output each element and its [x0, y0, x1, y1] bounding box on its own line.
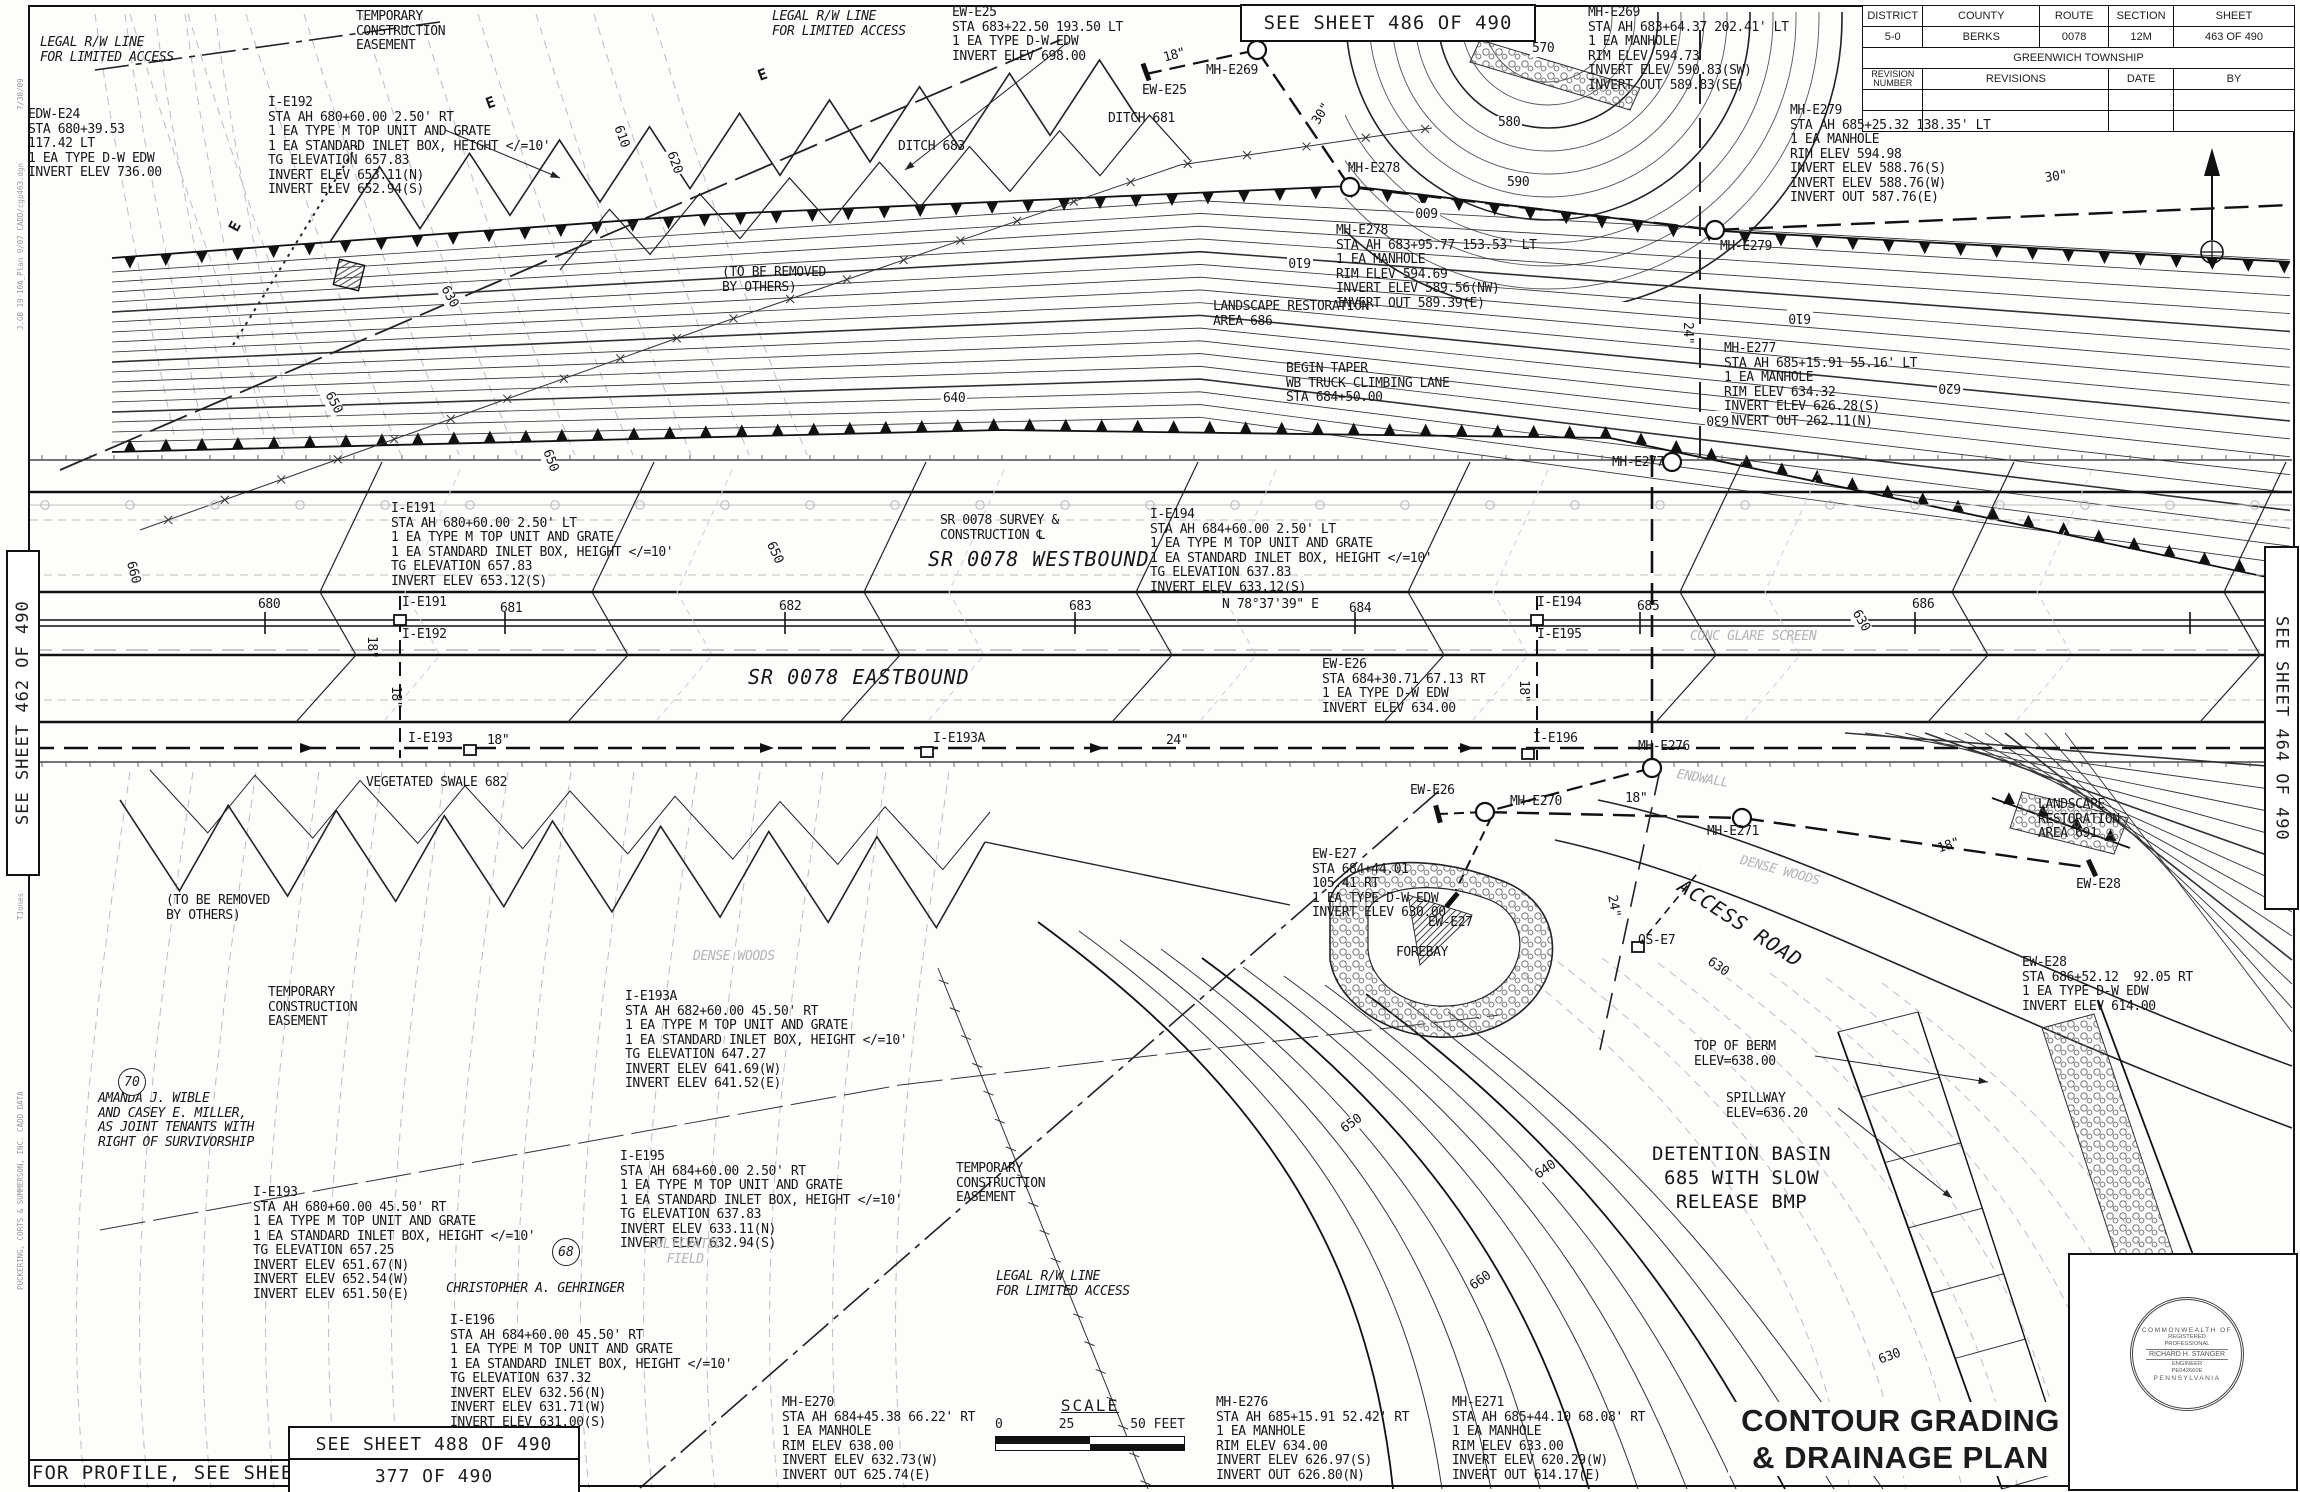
annotation-684: 684 [1349, 602, 1371, 617]
sheet-ref-profile: 377 OF 490 [288, 1458, 580, 1492]
annotation-j-gb-19-10a-plan-9-07-cadd-cg: J.GB 19-10A_Plan 9/07 CADD/cgp463.dgn [14, 163, 29, 330]
annotation-to-be-removed: (TO BE REMOVED BY OTHERS) [722, 266, 826, 295]
annotation-top-of-berm: TOP OF BERM ELEV=638.00 [1694, 1040, 1776, 1069]
annotation-24: 24" [1166, 734, 1188, 749]
annotation-detention-basin: DETENTION BASIN 685 WITH SLOW RELEASE BM… [1652, 1142, 1831, 1214]
seal-engineer-name: RICHARD H. STANGER [2146, 1349, 2228, 1360]
annotation-610: 610 [1787, 310, 1813, 325]
parcel-number-70: 70 [118, 1068, 146, 1096]
annotation-cultivated: CULTIVATED FIELD [648, 1238, 722, 1267]
revision-number-header: REVISION NUMBER [1863, 69, 1923, 90]
annotation-685: 685 [1637, 600, 1659, 615]
scale-block: SCALE 0 25 50 FEET [995, 1396, 1185, 1451]
annotation-ew-e28: EW-E28 STA 686+52.12 92.05 RT 1 EA TYPE … [2022, 956, 2193, 1014]
annotation-legal-r-w-line: LEGAL R/W LINE FOR LIMITED ACCESS [996, 1270, 1130, 1299]
annotation-24: 24" [1604, 894, 1622, 918]
annotation-temporary: TEMPORARY CONSTRUCTION EASEMENT [268, 986, 357, 1030]
annotation-600: 600 [1414, 204, 1440, 219]
annotation-580: 580 [1496, 116, 1522, 131]
annotation-temporary: TEMPORARY CONSTRUCTION EASEMENT [956, 1162, 1045, 1206]
stamp-box: COMMONWEALTH OF REGISTERED PROFESSIONAL … [2068, 1253, 2298, 1491]
annotation-30: 30" [2044, 169, 2068, 186]
route-value: 0078 [2040, 27, 2109, 48]
annotation-i-e192: I-E192 STA AH 680+60.00 2.50' RT 1 EA TY… [268, 96, 550, 198]
annotation-i-e191: I-E191 [402, 596, 447, 611]
drawing-title-line2: & DRAINAGE PLAN [1728, 1439, 2073, 1476]
annotation-24: 24" [1680, 322, 1695, 344]
title-block-header: SECTION [2109, 6, 2174, 27]
sheet-number-value: 463 OF 490 [2174, 27, 2295, 48]
annotation-forebay: FOREBAY [1396, 946, 1448, 961]
annotation-sr-0078-survey: SR 0078 SURVEY & CONSTRUCTION ℄ [940, 514, 1059, 543]
annotation-mh-e276: MH-E276 STA AH 685+15.91 52.42' RT 1 EA … [1216, 1396, 1409, 1483]
annotation-os-e7: OS-E7 [1638, 934, 1675, 949]
district-value: 5-0 [1863, 27, 1923, 48]
scale-tick-0: 0 [995, 1417, 1003, 1432]
annotation-landscape: LANDSCAPE RESTORATION AREA 691 [2038, 798, 2120, 842]
annotation-680: 680 [258, 598, 280, 613]
sheet-ref-left: SEE SHEET 462 OF 490 [6, 550, 40, 876]
annotation-i-e191: I-E191 STA AH 680+60.00 2.50' LT 1 EA TY… [391, 502, 673, 589]
annotation-dense-woods: DENSE WOODS [693, 950, 775, 965]
annotation-landscape-restoration: LANDSCAPE RESTORATION AREA 686 [1213, 300, 1369, 329]
annotation-7-30-09: 7/30/09 [14, 78, 29, 110]
date-header: DATE [2109, 69, 2174, 90]
annotation-sr-0078-eastbound: SR 0078 EASTBOUND [748, 670, 970, 685]
annotation-18: 18" [388, 686, 403, 708]
annotation-mh-e270: MH-E270 [1510, 795, 1562, 810]
annotation-ditch-681: DITCH 681 [1108, 112, 1175, 127]
annotation-ew-e25: EW-E25 STA 683+22.50 193.50 LT 1 EA TYPE… [952, 6, 1123, 64]
annotation-i-e192: I-E192 [402, 628, 447, 643]
annotation-i-e196: I-E196 STA AH 684+60.00 45.50' RT 1 EA T… [450, 1314, 732, 1430]
annotation-begin-taper: BEGIN TAPER WB TRUCK CLIMBING LANE STA 6… [1286, 362, 1449, 406]
annotation-18: 18" [364, 636, 379, 658]
annotation-mh-e271: MH-E271 [1707, 825, 1759, 840]
sheet-ref-top: SEE SHEET 486 OF 490 [1240, 4, 1536, 42]
annotation-686: 686 [1912, 598, 1934, 613]
annotation-to-be-removed: (TO BE REMOVED BY OTHERS) [166, 894, 270, 923]
section-value: 12M [2109, 27, 2174, 48]
annotation-610: 610 [1287, 254, 1313, 269]
drawing-sheet: SEE SHEET 486 OF 490 SEE SHEET 462 OF 49… [0, 0, 2300, 1492]
title-block-header: ROUTE [2040, 6, 2109, 27]
township-label: GREENWICH TOWNSHIP [1863, 48, 2295, 69]
annotation-i-e194: I-E194 [1537, 596, 1582, 611]
annotation-ew-e28: EW-E28 [2076, 878, 2121, 893]
scale-bar [995, 1436, 1185, 1451]
annotation-590: 590 [1505, 176, 1531, 191]
annotation-christopher-a-gehringer: CHRISTOPHER A. GEHRINGER [446, 1282, 624, 1297]
sheet-ref-right: SEE SHEET 464 OF 490 [2264, 546, 2299, 910]
scale-tick-25: 25 [1059, 1417, 1075, 1432]
annotation-ew-e26: EW-E26 STA 684+30.71 67.13 RT 1 EA TYPE … [1322, 658, 1485, 716]
parcel-number-68: 68 [552, 1238, 580, 1266]
annotation-18: 18" [487, 734, 509, 749]
annotation-i-e196: I-E196 [1533, 732, 1578, 747]
annotation-ew-e27: EW-E27 STA 684+44.01 105.41 RT 1 EA TYPE… [1312, 848, 1446, 921]
county-value: BERKS [1923, 27, 2040, 48]
annotation-mh-e269: MH-E269 [1206, 64, 1258, 79]
title-block-header: DISTRICT [1863, 6, 1923, 27]
annotation-mh-e278: MH-E278 [1348, 162, 1400, 177]
drawing-title-line1: CONTOUR GRADING [1728, 1402, 2073, 1439]
pe-seal-icon: COMMONWEALTH OF REGISTERED PROFESSIONAL … [2130, 1297, 2244, 1411]
annotation-620: 620 [1937, 380, 1963, 395]
annotation-puckering-corts-summerson-inc: PUCKERING, CORTS & SUMMERSON, INC. CADD … [14, 1091, 29, 1290]
revisions-header: REVISIONS [1923, 69, 2109, 90]
seal-arc-bottom: PENNSYLVANIA [2154, 1375, 2221, 1382]
annotation-mh-e279: MH-E279 [1720, 240, 1772, 255]
annotation-mh-e277: MH-E277 STA AH 685+15.91 55.16' LT 1 EA … [1724, 342, 1917, 429]
annotation-ew-e25: EW-E25 [1142, 84, 1187, 99]
annotation-mh-e277: MH-E277 [1612, 456, 1664, 471]
annotation-18: 18" [1516, 680, 1531, 702]
annotation-legal-r-w-line: LEGAL R/W LINE FOR LIMITED ACCESS [772, 10, 906, 39]
annotation-temporary: TEMPORARY CONSTRUCTION EASEMENT [356, 10, 445, 54]
annotation-682: 682 [779, 600, 801, 615]
annotation-mh-e269: MH-E269 STA AH 683+64.37 202.41' LT 1 EA… [1588, 6, 1789, 93]
profile-reference-label: FOR PROFILE, SEE SHEET [32, 1462, 306, 1484]
annotation-683: 683 [1069, 600, 1091, 615]
annotation-18: 18" [1625, 792, 1647, 807]
seal-engineer: ENGINEER [2172, 1361, 2202, 1368]
title-block-header: COUNTY [1923, 6, 2040, 27]
title-block-header: SHEET [2174, 6, 2295, 27]
annotation-mh-e276: MH-E276 [1638, 740, 1690, 755]
annotation-conc-glare-screen: CONC GLARE SCREEN [1690, 630, 1816, 645]
annotation-i-e193: I-E193 [408, 732, 453, 747]
annotation-amanda-j-wible: AMANDA J. WIBLE AND CASEY E. MILLER, AS … [98, 1092, 254, 1150]
annotation-tjones: TJones [14, 893, 29, 920]
annotation-630: 630 [1705, 412, 1731, 427]
annotation-681: 681 [500, 602, 522, 617]
annotation-570: 570 [1530, 42, 1556, 57]
annotation-640: 640 [941, 392, 967, 407]
annotation-n-78-37-39-e: N 78°37'39" E [1222, 598, 1319, 613]
scale-label: SCALE [995, 1396, 1185, 1415]
annotation-mh-e278: MH-E278 STA AH 683+95.77 153.53' LT 1 EA… [1336, 224, 1537, 311]
seal-registered: REGISTERED [2168, 1334, 2206, 1341]
seal-professional: PROFESSIONAL [2164, 1341, 2209, 1348]
annotation-ew-e26: EW-E26 [1410, 784, 1455, 799]
drawing-title: CONTOUR GRADING & DRAINAGE PLAN [1728, 1402, 2073, 1476]
by-header: BY [2174, 69, 2295, 90]
seal-license: PE042660E [2172, 1368, 2203, 1375]
annotation-mh-e270: MH-E270 STA AH 684+45.38 66.22' RT 1 EA … [782, 1396, 975, 1483]
annotation-i-e195: I-E195 [1537, 628, 1582, 643]
annotation-ew-e27: EW-E27 [1428, 916, 1473, 931]
annotation-i-e194: I-E194 STA AH 684+60.00 2.50' LT 1 EA TY… [1150, 508, 1432, 595]
annotation-vegetated-swale-682: VEGETATED SWALE 682 [366, 776, 507, 791]
annotation-spillway: SPILLWAY ELEV=636.20 [1726, 1092, 1808, 1121]
annotation-i-e193a: I-E193A [933, 732, 985, 747]
scale-tick-50: 50 FEET [1130, 1417, 1185, 1432]
annotation-ditch-683: DITCH 683 [898, 140, 965, 155]
annotation-i-e193a: I-E193A STA AH 682+60.00 45.50' RT 1 EA … [625, 990, 907, 1092]
annotation-legal-r-w-line: LEGAL R/W LINE FOR LIMITED ACCESS [40, 36, 174, 65]
annotation-sr-0078-westbound: SR 0078 WESTBOUND [928, 552, 1150, 567]
seal-arc-top: COMMONWEALTH OF [2142, 1327, 2232, 1334]
annotation-edw-e24: EDW-E24 STA 680+39.53 117.42 LT 1 EA TYP… [28, 108, 162, 181]
annotation-mh-e271: MH-E271 STA AH 685+44.10 68.08' RT 1 EA … [1452, 1396, 1645, 1483]
annotation-mh-e279: MH-E279 STA AH 685+25.32 138.35' LT 1 EA… [1790, 104, 1991, 206]
